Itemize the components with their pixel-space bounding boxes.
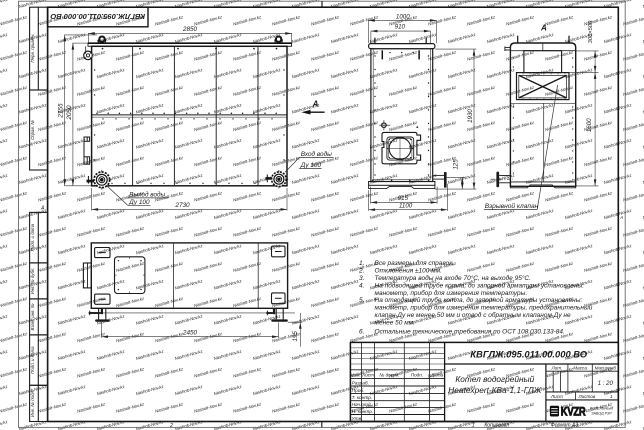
svg-text:Nasholt-Nov.kz: Nasholt-Nov.kz [427,120,457,133]
svg-text:Nasholt-Nov.kz: Nasholt-Nov.kz [193,401,223,414]
svg-text:Nasholt-Nov.kz: Nasholt-Nov.kz [271,401,301,414]
svg-text:Nasholt-Nov.kz: Nasholt-Nov.kz [622,120,644,133]
svg-text:Nasholt-Nov.kz: Nasholt-Nov.kz [466,49,496,62]
svg-text:Nasholt-Nov.kz: Nasholt-Nov.kz [622,331,644,344]
svg-text:Nasholt-Nov.kz: Nasholt-Nov.kz [135,102,165,115]
svg-text:1930: 1930 [467,109,474,123]
svg-text:Nasholt-Nov.kz: Nasholt-Nov.kz [388,84,418,97]
svg-text:Nasholt-Nov.kz: Nasholt-Nov.kz [271,14,301,27]
svg-text:Nasholt-Nov.kz: Nasholt-Nov.kz [369,384,399,397]
svg-text:Nasholt-Nov.kz: Nasholt-Nov.kz [154,84,184,97]
svg-text:Nasholt-Nov.kz: Nasholt-Nov.kz [154,401,184,414]
svg-text:Nasholt-Nov.kz: Nasholt-Nov.kz [135,172,165,185]
svg-text:Nasholt-Nov.kz: Nasholt-Nov.kz [252,243,282,256]
svg-text:Nasholt-Nov.kz: Nasholt-Nov.kz [622,155,644,168]
svg-text:Nasholt-Nov.kz: Nasholt-Nov.kz [0,313,9,326]
svg-text:Nasholt-Nov.kz: Nasholt-Nov.kz [291,67,321,80]
svg-text:Nasholt-Nov.kz: Nasholt-Nov.kz [564,243,594,256]
svg-text:Nasholt-Nov.kz: Nasholt-Nov.kz [232,366,262,379]
svg-text:Nasholt-Nov.kz: Nasholt-Nov.kz [583,190,613,203]
svg-text:4.: 4. [359,282,365,289]
svg-text:Nasholt-Nov.kz: Nasholt-Nov.kz [291,313,321,326]
svg-text:Nasholt-Nov.kz: Nasholt-Nov.kz [349,225,379,238]
svg-text:Nasholt-Nov.kz: Nasholt-Nov.kz [174,243,204,256]
svg-text:Nasholt-Nov.kz: Nasholt-Nov.kz [291,348,321,361]
svg-text:Nasholt-Nov.kz: Nasholt-Nov.kz [37,260,67,273]
svg-text:Nasholt-Nov.kz: Nasholt-Nov.kz [0,137,9,150]
svg-text:Nasholt-Nov.kz: Nasholt-Nov.kz [96,419,126,430]
svg-text:1.: 1. [359,260,365,267]
svg-text:Nasholt-Nov.kz: Nasholt-Nov.kz [310,401,340,414]
svg-text:Nasholt-Nov.kz: Nasholt-Nov.kz [525,32,555,45]
svg-text:Выход воды: Выход воды [129,190,165,198]
svg-text:KVZR: KVZR [561,406,586,419]
svg-text:Nasholt-Nov.kz: Nasholt-Nov.kz [525,172,555,185]
svg-text:Nasholt-Nov.kz: Nasholt-Nov.kz [505,401,535,414]
svg-text:Nasholt-Nov.kz: Nasholt-Nov.kz [466,155,496,168]
svg-text:Nasholt-Nov.kz: Nasholt-Nov.kz [0,260,28,273]
svg-text:Nasholt-Nov.kz: Nasholt-Nov.kz [37,366,67,379]
svg-text:Nasholt-Nov.kz: Nasholt-Nov.kz [57,278,87,291]
svg-text:300×500: 300×500 [588,20,594,44]
svg-text:Nasholt-Nov.kz: Nasholt-Nov.kz [174,419,204,430]
svg-text:2050: 2050 [66,105,73,121]
svg-text:Nasholt-Nov.kz: Nasholt-Nov.kz [505,225,535,238]
svg-text:Nasholt-Nov.kz: Nasholt-Nov.kz [76,366,106,379]
svg-text:Nasholt-Nov.kz: Nasholt-Nov.kz [0,32,9,45]
svg-text:2.: 2. [358,268,365,275]
svg-text:А: А [40,206,45,212]
svg-text:Проб.: Проб. [352,388,365,394]
svg-text:Nasholt-Nov.kz: Nasholt-Nov.kz [291,172,321,185]
svg-text:Nasholt-Nov.kz: Nasholt-Nov.kz [193,14,223,27]
svg-text:Nasholt-Nov.kz: Nasholt-Nov.kz [408,32,438,45]
svg-text:Nasholt-Nov.kz: Nasholt-Nov.kz [310,84,340,97]
svg-text:Nasholt-Nov.kz: Nasholt-Nov.kz [154,120,184,133]
svg-text:Nasholt-Nov.kz: Nasholt-Nov.kz [193,155,223,168]
svg-text:Nasholt-Nov.kz: Nasholt-Nov.kz [486,32,516,45]
svg-text:Nasholt-Nov.kz: Nasholt-Nov.kz [232,401,262,414]
svg-text:Nasholt-Nov.kz: Nasholt-Nov.kz [466,260,496,273]
svg-text:Nasholt-Nov.kz: Nasholt-Nov.kz [349,155,379,168]
svg-text:Nasholt-Nov.kz: Nasholt-Nov.kz [544,260,574,273]
svg-text:Nasholt-Nov.kz: Nasholt-Nov.kz [525,137,555,150]
svg-text:Heatexpert-КВа-1,1-ГЛЖ: Heatexpert-КВа-1,1-ГЛЖ [448,385,542,395]
svg-text:Nasholt-Nov.kz: Nasholt-Nov.kz [310,190,340,203]
svg-text:125: 125 [453,159,460,170]
svg-text:Nasholt-Nov.kz: Nasholt-Nov.kz [135,137,165,150]
svg-text:Nasholt-Nov.kz: Nasholt-Nov.kz [193,190,223,203]
svg-text:Nasholt-Nov.kz: Nasholt-Nov.kz [271,225,301,238]
svg-text:Nasholt-Nov.kz: Nasholt-Nov.kz [271,366,301,379]
svg-text:Nasholt-Nov.kz: Nasholt-Nov.kz [388,120,418,133]
svg-text:Остальные технические требован: Остальные технические требования по ОСТ … [375,327,566,335]
svg-text:Nasholt-Nov.kz: Nasholt-Nov.kz [154,225,184,238]
svg-text:Nasholt-Nov.kz: Nasholt-Nov.kz [213,419,243,430]
svg-text:Масса: Масса [573,365,587,370]
svg-text:Nasholt-Nov.kz: Nasholt-Nov.kz [174,384,204,397]
svg-text:Подп. и дата: Подп. и дата [30,346,35,374]
svg-text:Nasholt-Nov.kz: Nasholt-Nov.kz [213,172,243,185]
svg-text:Nasholt-Nov.kz: Nasholt-Nov.kz [369,419,399,430]
svg-text:Nasholt-Nov.kz: Nasholt-Nov.kz [330,32,360,45]
svg-text:Nasholt-Nov.kz: Nasholt-Nov.kz [0,49,28,62]
svg-text:Nasholt-Nov.kz: Nasholt-Nov.kz [76,401,106,414]
svg-text:Nasholt-Nov.kz: Nasholt-Nov.kz [486,243,516,256]
svg-text:Nasholt-Nov.kz: Nasholt-Nov.kz [447,243,477,256]
svg-text:Nasholt-Nov.kz: Nasholt-Nov.kz [76,331,106,344]
svg-text:Nasholt-Nov.kz: Nasholt-Nov.kz [271,296,301,309]
svg-text:Nasholt-Nov.kz: Nasholt-Nov.kz [154,366,184,379]
svg-text:Nasholt-Nov.kz: Nasholt-Nov.kz [154,155,184,168]
svg-text:1: 1 [610,394,613,399]
svg-text:Nasholt-Nov.kz: Nasholt-Nov.kz [154,296,184,309]
svg-text:ЗАВОД РЗР: ЗАВОД РЗР [591,411,612,415]
svg-text:Nasholt-Nov.kz: Nasholt-Nov.kz [310,225,340,238]
svg-text:Nasholt-Nov.kz: Nasholt-Nov.kz [505,260,535,273]
svg-text:1: 1 [472,423,475,429]
svg-text:Nasholt-Nov.kz: Nasholt-Nov.kz [57,243,87,256]
svg-text:Nasholt-Nov.kz: Nasholt-Nov.kz [622,296,644,309]
svg-text:Nasholt-Nov.kz: Nasholt-Nov.kz [135,313,165,326]
svg-text:Nasholt-Nov.kz: Nasholt-Nov.kz [213,137,243,150]
svg-text:Nasholt-Nov.kz: Nasholt-Nov.kz [622,401,644,414]
svg-text:Nasholt-Nov.kz: Nasholt-Nov.kz [408,102,438,115]
svg-text:Котел водогрейный: Котел водогрейный [455,374,534,384]
svg-text:Н. контр.: Н. контр. [352,409,374,415]
svg-text:Nasholt-Nov.kz: Nasholt-Nov.kz [37,296,67,309]
svg-text:Взрывной клапан: Взрывной клапан [485,202,539,210]
svg-text:Nasholt-Nov.kz: Nasholt-Nov.kz [57,67,87,80]
svg-text:Nasholt-Nov.kz: Nasholt-Nov.kz [330,172,360,185]
svg-text:195: 195 [292,331,299,342]
svg-text:Nasholt-Nov.kz: Nasholt-Nov.kz [525,102,555,115]
svg-text:Nasholt-Nov.kz: Nasholt-Nov.kz [252,278,282,291]
svg-text:Взам. инв. №: Взам. инв. № [30,303,35,330]
svg-text:Nasholt-Nov.kz: Nasholt-Nov.kz [213,102,243,115]
svg-text:Nasholt-Nov.kz: Nasholt-Nov.kz [622,225,644,238]
svg-text:Утв.: Утв. [352,416,363,422]
svg-text:Nasholt-Nov.kz: Nasholt-Nov.kz [0,278,9,291]
svg-text:Nasholt-Nov.kz: Nasholt-Nov.kz [310,14,340,27]
svg-text:Nasholt-Nov.kz: Nasholt-Nov.kz [0,366,28,379]
svg-text:Nasholt-Nov.kz: Nasholt-Nov.kz [96,243,126,256]
svg-text:Nasholt-Nov.kz: Nasholt-Nov.kz [369,32,399,45]
svg-text:Nasholt-Nov.kz: Nasholt-Nov.kz [0,401,28,414]
svg-text:Nasholt-Nov.kz: Nasholt-Nov.kz [135,67,165,80]
svg-text:Справ. №: Справ. № [30,120,35,140]
svg-text:Nasholt-Nov.kz: Nasholt-Nov.kz [96,137,126,150]
svg-text:Инв. № подл.: Инв. № подл. [30,390,35,417]
svg-text:Nasholt-Nov.kz: Nasholt-Nov.kz [505,14,535,27]
svg-text:Nasholt-Nov.kz: Nasholt-Nov.kz [310,260,340,273]
svg-text:Изм.: Изм. [351,373,361,378]
svg-text:манометр, прибор для измерения: манометр, прибор для измерения температу… [375,304,593,312]
svg-text:Nasholt-Nov.kz: Nasholt-Nov.kz [544,190,574,203]
svg-text:6.: 6. [359,328,365,335]
svg-text:Nasholt-Nov.kz: Nasholt-Nov.kz [369,243,399,256]
svg-text:Нач.отд.: Нач.отд. [352,402,372,408]
svg-text:КВГЛЖ.095.011.00.000 ВО: КВГЛЖ.095.011.00.000 ВО [470,348,588,359]
svg-text:КОТЕЛЬНЫЙ: КОТЕЛЬНЫЙ [590,407,614,411]
svg-text:Nasholt-Nov.kz: Nasholt-Nov.kz [447,67,477,80]
svg-text:Nasholt-Nov.kz: Nasholt-Nov.kz [408,348,438,361]
svg-text:Nasholt-Nov.kz: Nasholt-Nov.kz [0,190,28,203]
svg-text:Nasholt-Nov.kz: Nasholt-Nov.kz [57,419,87,430]
svg-text:Nasholt-Nov.kz: Nasholt-Nov.kz [622,14,644,27]
svg-text:Nasholt-Nov.kz: Nasholt-Nov.kz [154,14,184,27]
svg-text:Nasholt-Nov.kz: Nasholt-Nov.kz [115,296,145,309]
svg-text:Т. контр.: Т. контр. [352,395,373,401]
svg-text:Nasholt-Nov.kz: Nasholt-Nov.kz [135,419,165,430]
svg-text:Nasholt-Nov.kz: Nasholt-Nov.kz [96,348,126,361]
svg-text:Nasholt-Nov.kz: Nasholt-Nov.kz [193,225,223,238]
svg-text:Nasholt-Nov.kz: Nasholt-Nov.kz [37,401,67,414]
svg-text:Nasholt-Nov.kz: Nasholt-Nov.kz [0,243,9,256]
svg-text:Nasholt-Nov.kz: Nasholt-Nov.kz [310,366,340,379]
svg-text:Nasholt-Nov.kz: Nasholt-Nov.kz [466,225,496,238]
svg-text:Nasholt-Nov.kz: Nasholt-Nov.kz [213,313,243,326]
svg-text:Nasholt-Nov.kz: Nasholt-Nov.kz [193,49,223,62]
svg-text:Nasholt-Nov.kz: Nasholt-Nov.kz [174,278,204,291]
svg-text:Nasholt-Nov.kz: Nasholt-Nov.kz [96,67,126,80]
svg-text:Nasholt-Nov.kz: Nasholt-Nov.kz [115,366,145,379]
svg-text:Лист: Лист [361,373,374,378]
svg-text:Nasholt-Nov.kz: Nasholt-Nov.kz [193,120,223,133]
svg-text:Nasholt-Nov.kz: Nasholt-Nov.kz [310,296,340,309]
svg-text:Nasholt-Nov.kz: Nasholt-Nov.kz [115,331,145,344]
svg-text:1000: 1000 [396,13,410,20]
svg-text:Листов: Листов [578,394,596,399]
svg-text:Ду 100: Ду 100 [300,162,322,169]
svg-text:Nasholt-Nov.kz: Nasholt-Nov.kz [213,243,243,256]
svg-text:Nasholt-Nov.kz: Nasholt-Nov.kz [0,155,28,168]
svg-text:Nasholt-Nov.kz: Nasholt-Nov.kz [408,243,438,256]
svg-text:Nasholt-Nov.kz: Nasholt-Nov.kz [232,331,262,344]
svg-text:Nasholt-Nov.kz: Nasholt-Nov.kz [37,120,67,133]
svg-text:КВГЛЖ.095.011.00.000 ВО: КВГЛЖ.095.011.00.000 ВО [50,12,145,21]
svg-text:Nasholt-Nov.kz: Nasholt-Nov.kz [115,225,145,238]
svg-text:Nasholt-Nov.kz: Nasholt-Nov.kz [0,84,28,97]
svg-text:Лист: Лист [550,394,563,399]
svg-text:Nasholt-Nov.kz: Nasholt-Nov.kz [427,190,457,203]
svg-text:Nasholt-Nov.kz: Nasholt-Nov.kz [232,190,262,203]
svg-text:Nasholt-Nov.kz: Nasholt-Nov.kz [76,225,106,238]
svg-text:Nasholt-Nov.kz: Nasholt-Nov.kz [18,67,48,80]
svg-text:Nasholt-Nov.kz: Nasholt-Nov.kz [544,155,574,168]
svg-text:Nasholt-Nov.kz: Nasholt-Nov.kz [622,84,644,97]
svg-text:Nasholt-Nov.kz: Nasholt-Nov.kz [427,225,457,238]
svg-text:Nasholt-Nov.kz: Nasholt-Nov.kz [349,190,379,203]
svg-text:Nasholt-Nov.kz: Nasholt-Nov.kz [271,260,301,273]
svg-text:Nasholt-Nov.kz: Nasholt-Nov.kz [174,348,204,361]
svg-text:Nasholt-Nov.kz: Nasholt-Nov.kz [330,102,360,115]
svg-text:менее 50 мм.: менее 50 мм. [375,319,416,326]
svg-text:Nasholt-Nov.kz: Nasholt-Nov.kz [564,208,594,221]
svg-text:Nasholt-Nov.kz: Nasholt-Nov.kz [174,313,204,326]
svg-text:Nasholt-Nov.kz: Nasholt-Nov.kz [622,190,644,203]
svg-text:Nasholt-Nov.kz: Nasholt-Nov.kz [57,208,87,221]
svg-text:Nasholt-Nov.kz: Nasholt-Nov.kz [154,49,184,62]
svg-text:2730: 2730 [174,202,190,209]
svg-text:1 : 20: 1 : 20 [598,381,614,387]
svg-text:Nasholt-Nov.kz: Nasholt-Nov.kz [232,14,262,27]
svg-text:Nasholt-Nov.kz: Nasholt-Nov.kz [0,384,9,397]
svg-text:Nasholt-Nov.kz: Nasholt-Nov.kz [115,84,145,97]
svg-text:Nasholt-Nov.kz: Nasholt-Nov.kz [466,190,496,203]
svg-text:Nasholt-Nov.kz: Nasholt-Nov.kz [135,348,165,361]
svg-text:5.: 5. [359,297,365,304]
svg-text:Nasholt-Nov.kz: Nasholt-Nov.kz [0,67,9,80]
svg-text:Nasholt-Nov.kz: Nasholt-Nov.kz [96,102,126,115]
svg-text:Nasholt-Nov.kz: Nasholt-Nov.kz [135,278,165,291]
svg-text:Nasholt-Nov.kz: Nasholt-Nov.kz [408,419,438,430]
svg-text:Nasholt-Nov.kz: Nasholt-Nov.kz [388,225,418,238]
svg-text:Nasholt-Nov.kz: Nasholt-Nov.kz [466,14,496,27]
svg-text:Nasholt-Nov.kz: Nasholt-Nov.kz [37,331,67,344]
svg-text:Nasholt-Nov.kz: Nasholt-Nov.kz [330,137,360,150]
svg-text:3.: 3. [359,275,365,282]
svg-text:Nasholt-Nov.kz: Nasholt-Nov.kz [622,49,644,62]
svg-text:Nasholt-Nov.kz: Nasholt-Nov.kz [57,348,87,361]
svg-text:Nasholt-Nov.kz: Nasholt-Nov.kz [544,225,574,238]
svg-text:Nasholt-Nov.kz: Nasholt-Nov.kz [135,243,165,256]
svg-text:Nasholt-Nov.kz: Nasholt-Nov.kz [115,49,145,62]
svg-text:Nasholt-Nov.kz: Nasholt-Nov.kz [427,84,457,97]
svg-text:Nasholt-Nov.kz: Nasholt-Nov.kz [37,190,67,203]
svg-text:Nasholt-Nov.kz: Nasholt-Nov.kz [0,208,9,221]
svg-text:клапан Ду не менее 50 мм и отв: клапан Ду не менее 50 мм и отвод с обрат… [375,311,572,319]
svg-text:Nasholt-Nov.kz: Nasholt-Nov.kz [564,172,594,185]
svg-text:Nasholt-Nov.kz: Nasholt-Nov.kz [0,172,9,185]
svg-text:Nasholt-Nov.kz: Nasholt-Nov.kz [0,331,28,344]
svg-text:Nasholt-Nov.kz: Nasholt-Nov.kz [583,331,613,344]
svg-text:Nasholt-Nov.kz: Nasholt-Nov.kz [174,172,204,185]
svg-text:Nasholt-Nov.kz: Nasholt-Nov.kz [18,102,48,115]
svg-text:Nasholt-Nov.kz: Nasholt-Nov.kz [583,260,613,273]
svg-text:Nasholt-Nov.kz: Nasholt-Nov.kz [349,84,379,97]
svg-text:Nasholt-Nov.kz: Nasholt-Nov.kz [330,348,360,361]
svg-text:Nasholt-Nov.kz: Nasholt-Nov.kz [622,260,644,273]
svg-text:Nasholt-Nov.kz: Nasholt-Nov.kz [193,296,223,309]
svg-text:Nasholt-Nov.kz: Nasholt-Nov.kz [408,384,438,397]
svg-text:Nasholt-Nov.kz: Nasholt-Nov.kz [0,419,9,430]
svg-text:Nasholt-Nov.kz: Nasholt-Nov.kz [174,102,204,115]
svg-text:Дата: Дата [430,373,444,378]
svg-text:Nasholt-Nov.kz: Nasholt-Nov.kz [583,84,613,97]
svg-text:1100: 1100 [399,203,413,210]
svg-text:Nasholt-Nov.kz: Nasholt-Nov.kz [252,102,282,115]
svg-text:Nasholt-Nov.kz: Nasholt-Nov.kz [57,384,87,397]
svg-text:Лит.: Лит. [551,365,563,370]
svg-text:915: 915 [398,195,409,202]
svg-text:Nasholt-Nov.kz: Nasholt-Nov.kz [193,366,223,379]
svg-text:Nasholt-Nov.kz: Nasholt-Nov.kz [330,208,360,221]
svg-text:Nasholt-Nov.kz: Nasholt-Nov.kz [193,260,223,273]
svg-text:Формат А3: Формат А3 [551,423,579,429]
svg-text:Nasholt-Nov.kz: Nasholt-Nov.kz [622,366,644,379]
svg-text:Nasholt-Nov.kz: Nasholt-Nov.kz [447,137,477,150]
svg-text:Nasholt-Nov.kz: Nasholt-Nov.kz [0,102,9,115]
svg-text:Nasholt-Nov.kz: Nasholt-Nov.kz [310,120,340,133]
svg-text:Nasholt-Nov.kz: Nasholt-Nov.kz [115,155,145,168]
svg-text:Nasholt-Nov.kz: Nasholt-Nov.kz [0,225,28,238]
svg-text:Nasholt-Nov.kz: Nasholt-Nov.kz [310,49,340,62]
svg-text:Nasholt-Nov.kz: Nasholt-Nov.kz [0,348,9,361]
svg-text:Подп. и дата: Подп. и дата [30,223,35,251]
svg-text:Nasholt-Nov.kz: Nasholt-Nov.kz [174,137,204,150]
svg-text:1600: 1600 [586,118,593,132]
svg-text:Nasholt-Nov.kz: Nasholt-Nov.kz [427,49,457,62]
svg-text:Отклонения ±100 мм.: Отклонения ±100 мм. [375,268,443,275]
svg-text:манометр, прибор для измерения: манометр, прибор для измерения температу… [375,289,528,297]
svg-text:А: А [619,215,623,220]
svg-text:Nasholt-Nov.kz: Nasholt-Nov.kz [252,419,282,430]
svg-text:Nasholt-Nov.kz: Nasholt-Nov.kz [583,225,613,238]
svg-text:Ду 100: Ду 100 [128,199,150,206]
svg-text:Nasholt-Nov.kz: Nasholt-Nov.kz [154,331,184,344]
svg-text:А: А [540,23,547,32]
svg-text:Nasholt-Nov.kz: Nasholt-Nov.kz [135,384,165,397]
svg-text:Перв. примен.: Перв. примен. [30,33,35,62]
svg-text:Nasholt-Nov.kz: Nasholt-Nov.kz [57,32,87,45]
svg-text:Nasholt-Nov.kz: Nasholt-Nov.kz [564,102,594,115]
svg-text:Nasholt-Nov.kz: Nasholt-Nov.kz [193,84,223,97]
svg-text:Nasholt-Nov.kz: Nasholt-Nov.kz [291,419,321,430]
svg-text:Nasholt-Nov.kz: Nasholt-Nov.kz [291,208,321,221]
svg-text:910: 910 [395,24,406,31]
svg-text:Nasholt-Nov.kz: Nasholt-Nov.kz [505,190,535,203]
svg-text:Nasholt-Nov.kz: Nasholt-Nov.kz [291,278,321,291]
svg-text:Nasholt-Nov.kz: Nasholt-Nov.kz [330,278,360,291]
svg-text:Nasholt-Nov.kz: Nasholt-Nov.kz [408,67,438,80]
svg-text:Nasholt-Nov.kz: Nasholt-Nov.kz [37,84,67,97]
svg-text:Nasholt-Nov.kz: Nasholt-Nov.kz [447,32,477,45]
svg-text:Nasholt-Nov.kz: Nasholt-Nov.kz [447,208,477,221]
svg-text:Nasholt-Nov.kz: Nasholt-Nov.kz [96,384,126,397]
svg-text:А: А [312,100,319,109]
svg-text:Nasholt-Nov.kz: Nasholt-Nov.kz [583,155,613,168]
svg-text:Инв. № дубл.: Инв. № дубл. [30,267,35,294]
svg-text:Nasholt-Nov.kz: Nasholt-Nov.kz [57,172,87,185]
svg-text:Nasholt-Nov.kz: Nasholt-Nov.kz [115,260,145,273]
svg-text:Nasholt-Nov.kz: Nasholt-Nov.kz [486,137,516,150]
svg-text:Подп.: Подп. [411,373,423,378]
svg-text:Nasholt-Nov.kz: Nasholt-Nov.kz [466,84,496,97]
svg-text:Nasholt-Nov.kz: Nasholt-Nov.kz [96,278,126,291]
svg-text:Nasholt-Nov.kz: Nasholt-Nov.kz [330,243,360,256]
svg-text:Разраб.: Разраб. [352,381,369,387]
svg-text:Nasholt-Nov.kz: Nasholt-Nov.kz [388,49,418,62]
svg-text:Nasholt-Nov.kz: Nasholt-Nov.kz [525,243,555,256]
svg-text:Nasholt-Nov.kz: Nasholt-Nov.kz [252,384,282,397]
svg-text:Nasholt-Nov.kz: Nasholt-Nov.kz [466,401,496,414]
svg-text:Nasholt-Nov.kz: Nasholt-Nov.kz [154,260,184,273]
svg-text:Nasholt-Nov.kz: Nasholt-Nov.kz [174,67,204,80]
svg-text:Температура воды на входе 70°С: Температура воды на входе 70°С, на выход… [375,274,532,282]
svg-text:Nasholt-Nov.kz: Nasholt-Nov.kz [115,120,145,133]
svg-text:Nasholt-Nov.kz: Nasholt-Nov.kz [544,120,574,133]
svg-text:Nasholt-Nov.kz: Nasholt-Nov.kz [349,120,379,133]
svg-text:Nasholt-Nov.kz: Nasholt-Nov.kz [37,49,67,62]
svg-text:Nasholt-Nov.kz: Nasholt-Nov.kz [369,348,399,361]
svg-text:Nasholt-Nov.kz: Nasholt-Nov.kz [330,67,360,80]
svg-text:Вход воды: Вход воды [301,150,332,158]
svg-text:Nasholt-Nov.kz: Nasholt-Nov.kz [252,67,282,80]
svg-text:Nasholt-Nov.kz: Nasholt-Nov.kz [310,331,340,344]
svg-text:2155: 2155 [58,103,65,119]
svg-text:Nasholt-Nov.kz: Nasholt-Nov.kz [37,155,67,168]
